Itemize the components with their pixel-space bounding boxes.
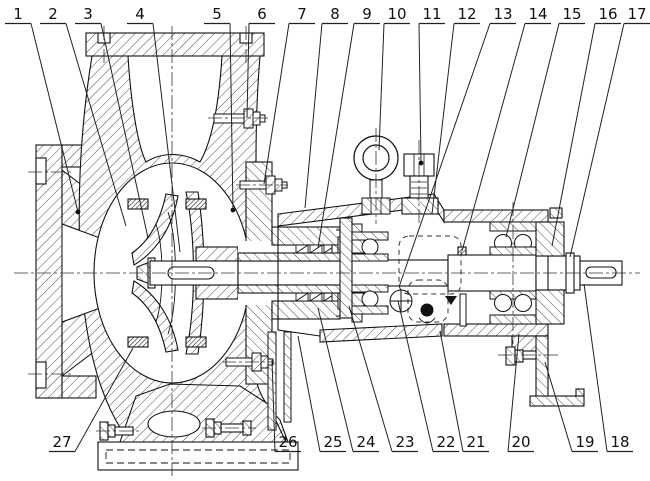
callout-11: 11 [419, 5, 445, 165]
callout-7: 7 [264, 5, 315, 184]
callout-label: 21 [466, 433, 485, 451]
callout-label: 17 [627, 5, 646, 23]
callout-label: 1 [13, 5, 23, 23]
leader-line [398, 301, 433, 452]
impeller-hub [196, 247, 238, 261]
leader-line [379, 24, 384, 151]
callout-8: 8 [305, 5, 348, 208]
callout-label: 4 [135, 5, 145, 23]
callout-12: 12 [432, 5, 480, 214]
leader-dot [231, 208, 236, 213]
callout-label: 22 [436, 433, 455, 451]
callout-10: 10 [379, 5, 410, 150]
callout-label: 6 [257, 5, 267, 23]
stuffing-box-wall [272, 227, 340, 245]
callout-label: 2 [48, 5, 58, 23]
leader-line [570, 24, 624, 258]
callout-17: 17 [570, 5, 650, 257]
pump-sectional-diagram: 1234567891011121314151617272625242322212… [0, 0, 650, 481]
callout-label: 7 [297, 5, 307, 23]
callout-label: 3 [83, 5, 93, 23]
callout-label: 24 [356, 433, 375, 451]
shaft-keyway [586, 267, 616, 278]
callout-18: 18 [584, 284, 633, 452]
leader-line [264, 24, 289, 185]
shaft-sleeve [238, 253, 346, 261]
baseplate [98, 442, 298, 470]
callout-label: 15 [562, 5, 581, 23]
leader-line [552, 24, 595, 247]
callout-label: 16 [598, 5, 617, 23]
callout-15: 15 [506, 5, 585, 237]
leader-line [305, 24, 322, 209]
callout-label: 8 [330, 5, 340, 23]
leader-dot [76, 210, 81, 215]
callout-label: 9 [362, 5, 372, 23]
leader-line [298, 336, 320, 452]
bracket-partition [340, 218, 352, 318]
cover-bolt [550, 208, 562, 218]
callout-label: 26 [278, 433, 297, 451]
drain-plug-dot [421, 304, 434, 317]
callout-label: 20 [511, 433, 530, 451]
handhole [148, 411, 200, 437]
callout-label: 5 [212, 5, 222, 23]
callout-label: 27 [52, 433, 71, 451]
oil-level-tube [460, 294, 466, 326]
leader-dot [419, 161, 424, 166]
foot-bolt [506, 347, 515, 365]
callout-label: 19 [575, 433, 594, 451]
callout-label: 12 [457, 5, 476, 23]
callout-label: 13 [493, 5, 512, 23]
callout-label: 10 [387, 5, 406, 23]
leader-line [432, 24, 454, 215]
oil-level-mark [445, 296, 457, 305]
leader-line [545, 362, 572, 452]
drip-plates [268, 332, 291, 430]
callout-19: 19 [545, 362, 598, 452]
leader-line [584, 284, 607, 452]
rear-wear-ring [186, 199, 206, 209]
callout-label: 18 [610, 433, 629, 451]
front-wear-ring [128, 199, 148, 209]
leader-line [506, 24, 559, 238]
callout-label: 14 [528, 5, 547, 23]
discharge-flange [86, 33, 264, 56]
pump-sectional-figure: 1234567891011121314151617272625242322212… [0, 0, 650, 481]
callout-label: 11 [422, 5, 441, 23]
callout-label: 25 [323, 433, 342, 451]
callout-label: 23 [395, 433, 414, 451]
